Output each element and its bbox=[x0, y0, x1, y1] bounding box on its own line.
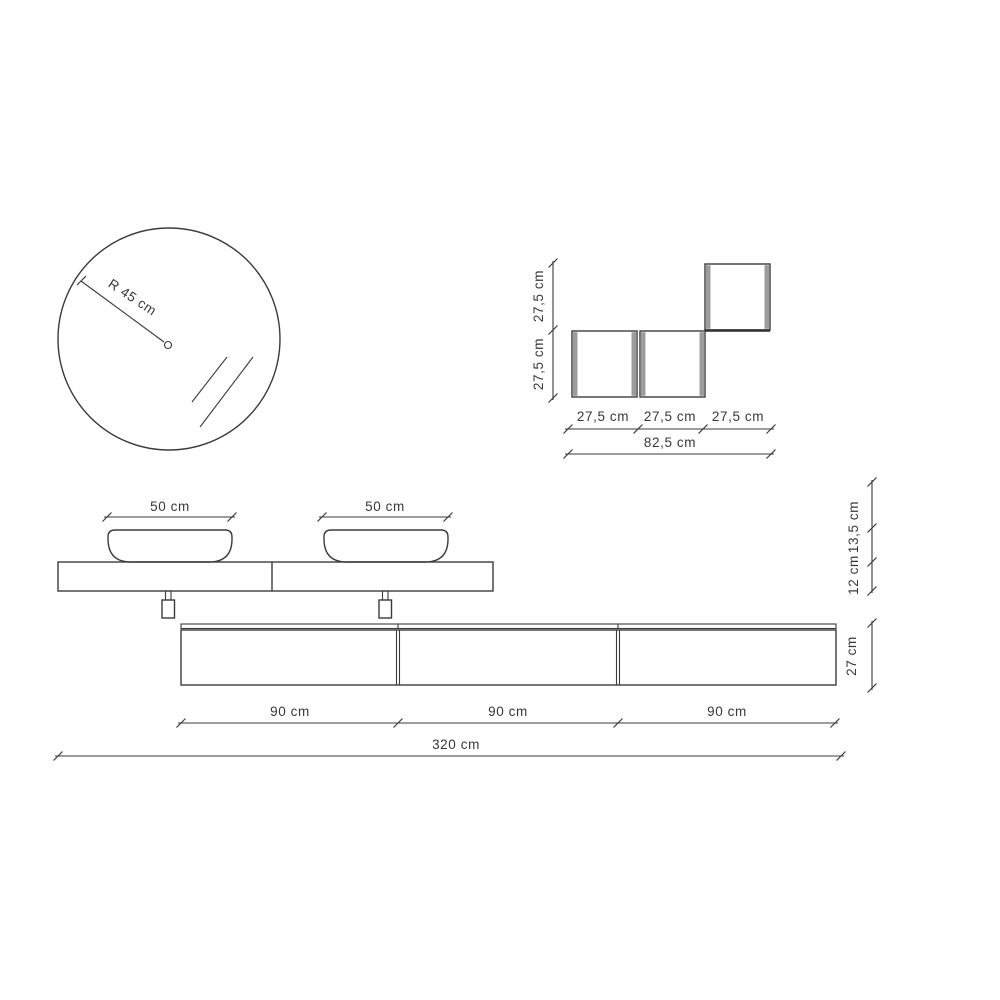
drain-2-stem bbox=[383, 591, 389, 600]
width-label-2: 27,5 cm bbox=[644, 409, 696, 424]
mirror-radius-label: R 45 cm bbox=[106, 276, 160, 319]
round-mirror: R 45 cm bbox=[58, 228, 280, 450]
base-cabinet: 27 cm 90 cm 90 cm 90 cm bbox=[177, 619, 877, 728]
wall-cabinet-1-right-side bbox=[632, 332, 637, 396]
basin-2 bbox=[324, 530, 448, 562]
vanity-top: 50 cm 50 cm bbox=[58, 499, 493, 618]
drain-1-stem bbox=[166, 591, 172, 600]
overall-width-label: 320 cm bbox=[432, 737, 480, 752]
wall-cabinet-module-2 bbox=[640, 331, 705, 397]
base-height-label: 27 cm bbox=[844, 636, 859, 676]
mirror-reflection-line-1 bbox=[192, 357, 227, 402]
base-cabinet-width-dimension: 90 cm 90 cm 90 cm bbox=[177, 704, 840, 728]
basin-1 bbox=[108, 530, 232, 562]
base-cabinet-top-strip bbox=[181, 624, 836, 629]
wall-cabinet-1-left-side bbox=[573, 332, 578, 396]
drain-1 bbox=[162, 591, 175, 618]
drain-1-body bbox=[162, 600, 175, 618]
height-label-upper: 27,5 cm bbox=[531, 270, 546, 322]
module-width-label-3: 90 cm bbox=[707, 704, 747, 719]
module-width-label-2: 90 cm bbox=[488, 704, 528, 719]
wall-cabinet-3-left-side bbox=[706, 265, 711, 329]
wall-cabinets-width-dimension: 27,5 cm 27,5 cm 27,5 cm bbox=[564, 409, 776, 434]
wall-cabinets-height-dimension: 27,5 cm 27,5 cm bbox=[531, 259, 558, 403]
basin-1-width-label: 50 cm bbox=[150, 499, 190, 514]
mirror-reflection-line-2 bbox=[200, 357, 253, 427]
wall-cabinet-2-left-side bbox=[641, 332, 646, 396]
drain-2 bbox=[379, 591, 392, 618]
width-label-3: 27,5 cm bbox=[712, 409, 764, 424]
basin-2-width-label: 50 cm bbox=[365, 499, 405, 514]
vanity-height-dimensions: 13,5 cm 12 cm bbox=[846, 478, 877, 596]
wall-cabinets: 27,5 cm 27,5 cm 27,5 cm 27,5 cm 27,5 cm … bbox=[531, 259, 776, 459]
wall-cabinet-module-1 bbox=[572, 331, 637, 397]
wall-cabinet-2-right-side bbox=[700, 332, 705, 396]
wall-cabinets-total-width-dimension: 82,5 cm bbox=[564, 435, 776, 459]
furniture-dimension-drawing: R 45 cm 27,5 cm bbox=[0, 0, 1000, 1000]
base-cabinet-height-dimension: 27 cm bbox=[844, 619, 877, 693]
drain-2-body bbox=[379, 600, 392, 618]
module-width-label-1: 90 cm bbox=[270, 704, 310, 719]
wall-cabinet-module-3 bbox=[705, 264, 770, 331]
total-width-label: 82,5 cm bbox=[644, 435, 696, 450]
technical-drawing-canvas: R 45 cm 27,5 cm bbox=[0, 0, 1000, 1000]
wall-cabinet-1-box bbox=[572, 331, 637, 397]
width-label-1: 27,5 cm bbox=[577, 409, 629, 424]
counter-shelf bbox=[58, 562, 493, 591]
mirror-circle bbox=[58, 228, 280, 450]
mirror-center-marker bbox=[165, 342, 172, 349]
overall-width-dimension: 320 cm bbox=[54, 737, 846, 761]
wall-cabinet-3-box bbox=[705, 264, 770, 330]
base-cabinet-body bbox=[181, 630, 836, 685]
wall-cabinet-3-right-side bbox=[765, 265, 770, 329]
basin-height-label: 13,5 cm bbox=[846, 501, 861, 553]
wall-cabinet-2-box bbox=[640, 331, 705, 397]
height-label-lower: 27,5 cm bbox=[531, 338, 546, 390]
counter-thickness-label: 12 cm bbox=[846, 555, 861, 595]
